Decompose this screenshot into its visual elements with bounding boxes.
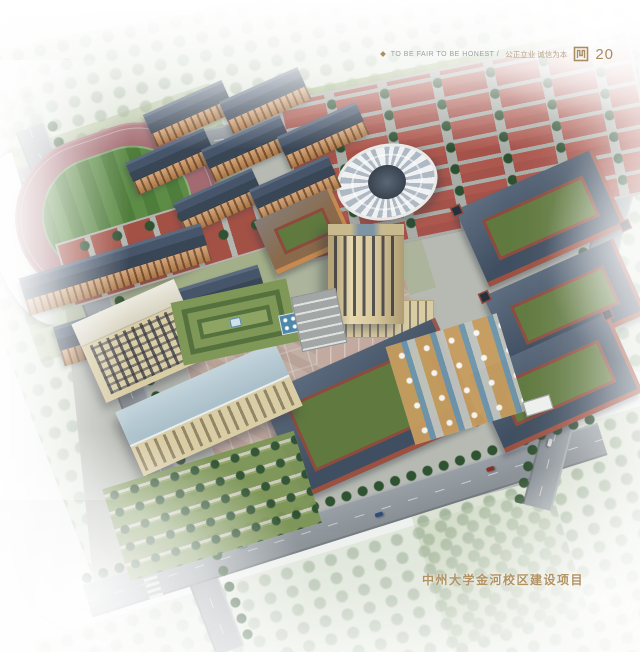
page-number: 20 xyxy=(595,46,614,63)
slogan-english: TO BE FAIR TO BE HONEST / xyxy=(391,51,499,58)
seal-logo-icon xyxy=(573,46,589,62)
car xyxy=(486,466,495,472)
garden-pool xyxy=(229,317,242,328)
slogan-bullet-icon xyxy=(380,51,386,57)
slogan-chinese: 公正立业 诚信为本 xyxy=(505,49,567,60)
campus-aerial-rendering: TO BE FAIR TO BE HONEST / 公正立业 诚信为本 20 中… xyxy=(0,0,640,652)
project-title: 中州大学金河校区建设项目 xyxy=(422,571,584,588)
corner-spire xyxy=(451,205,462,216)
page-header: TO BE FAIR TO BE HONEST / 公正立业 诚信为本 20 xyxy=(381,44,614,64)
car xyxy=(375,511,384,517)
corner-spire xyxy=(480,292,491,303)
